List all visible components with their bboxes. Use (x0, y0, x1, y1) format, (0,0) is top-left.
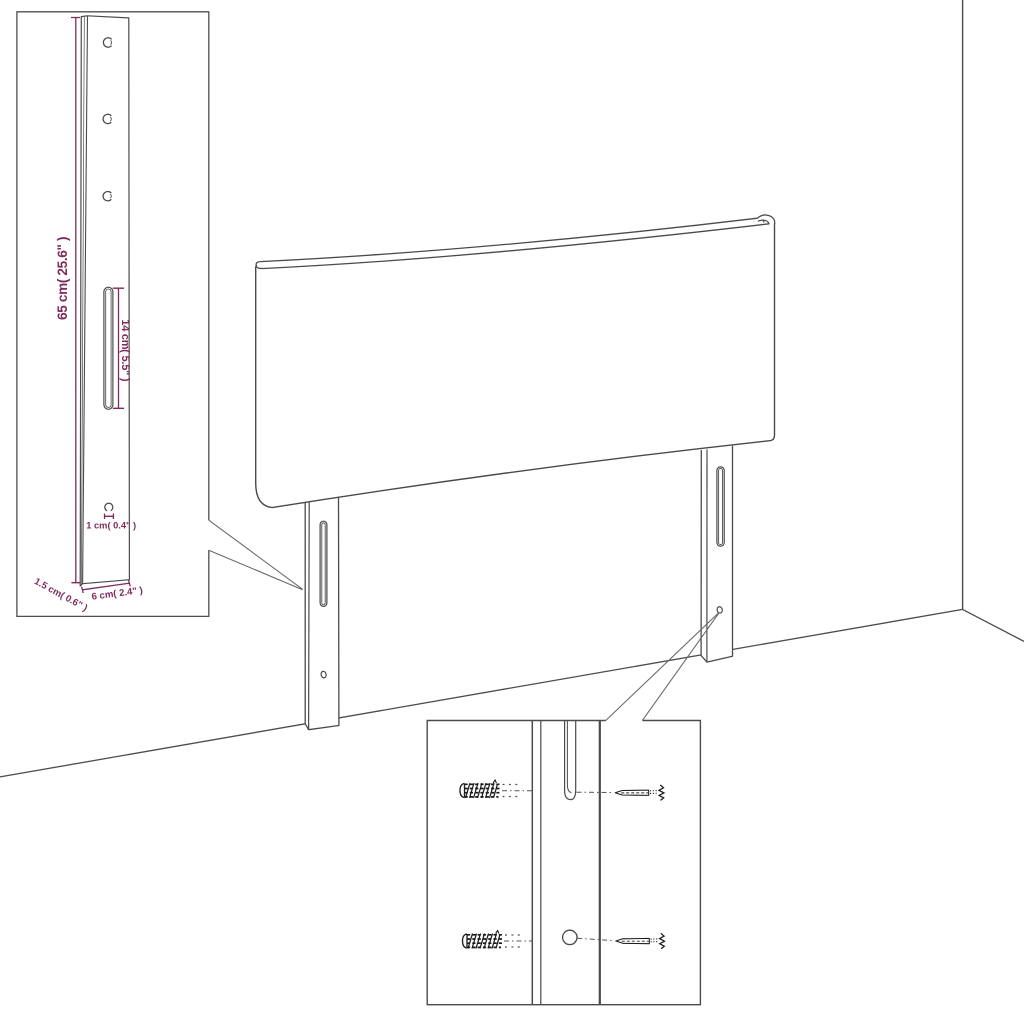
svg-text:14 cm( 5.5" ): 14 cm( 5.5" ) (119, 319, 131, 381)
svg-text:1 cm( 0.4" ): 1 cm( 0.4" ) (86, 520, 136, 530)
svg-text:65 cm( 25.6" ): 65 cm( 25.6" ) (55, 237, 70, 320)
